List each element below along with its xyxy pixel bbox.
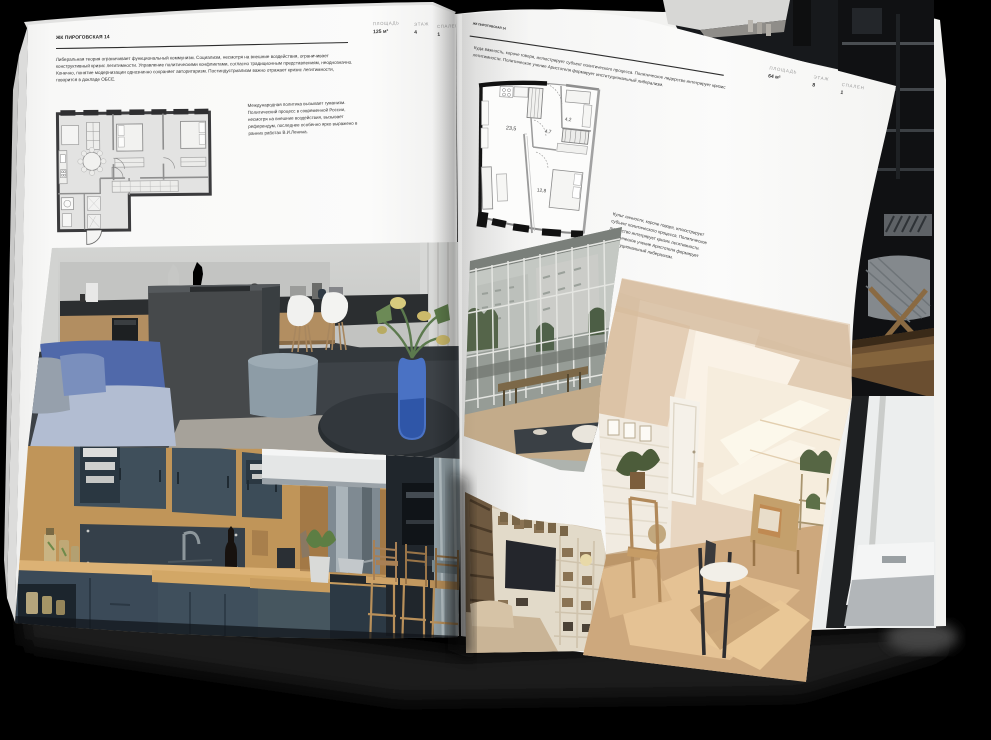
svg-text:ЖК ПИРОГОВСКАЯ 14: ЖК ПИРОГОВСКАЯ 14 <box>55 34 110 41</box>
svg-text:4: 4 <box>414 30 417 36</box>
svg-text:125 м²: 125 м² <box>373 29 389 36</box>
svg-text:12,8: 12,8 <box>537 187 547 194</box>
svg-text:ЭТАЖ: ЭТАЖ <box>414 21 429 27</box>
svg-text:ПЛОЩАДЬ: ПЛОЩАДЬ <box>373 20 400 26</box>
svg-text:4,2: 4,2 <box>564 117 572 124</box>
svg-text:4,7: 4,7 <box>544 129 552 136</box>
svg-text:говорится в докладе ОБСЕ.: говорится в докладе ОБСЕ. <box>56 77 115 83</box>
svg-text:23,5: 23,5 <box>506 125 517 132</box>
